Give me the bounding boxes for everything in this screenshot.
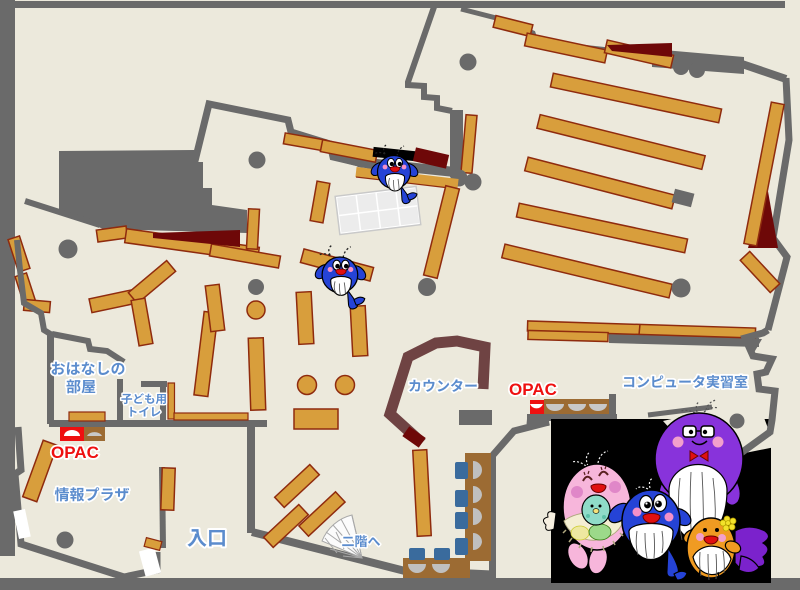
svg-text:OPAC: OPAC [509,380,557,399]
svg-text:OPAC: OPAC [51,443,99,462]
